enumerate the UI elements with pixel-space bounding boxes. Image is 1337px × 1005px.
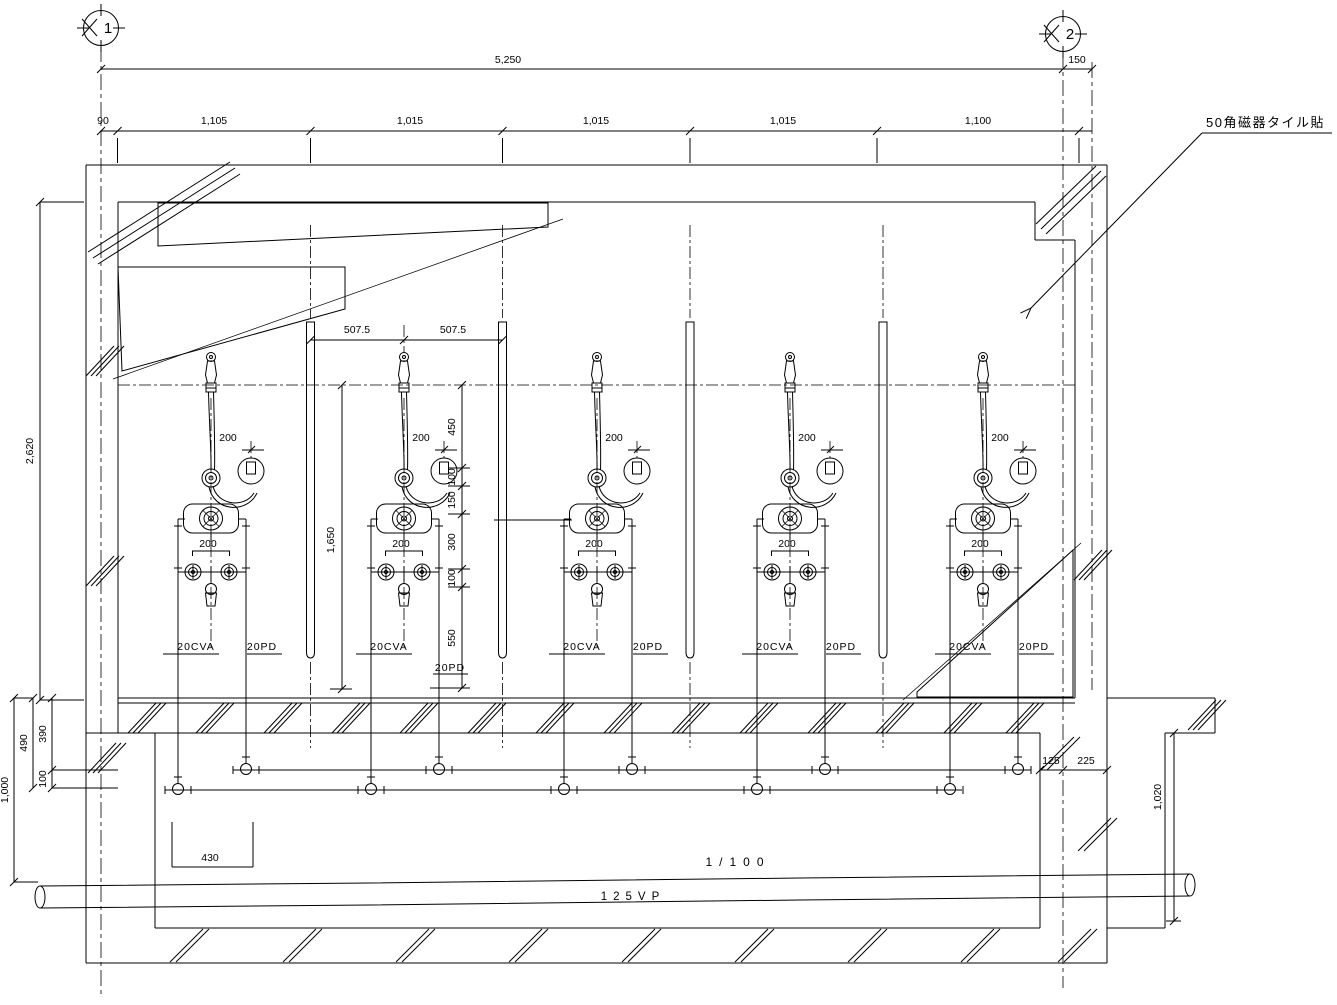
dimension-stack: 450 100 150 300 100 550 [430,381,470,692]
grid-bubble-2-label: 2 [1066,26,1074,43]
dim-seg-1015a: 1,015 [397,115,423,127]
grid-bubble-1-label: 1 [104,20,112,37]
tile-break-line-upper [113,219,563,379]
dim-pit-225: 225 [1077,755,1095,767]
tile-break-line-lower [903,543,1081,700]
f5-drain-label: 20PD [1019,641,1049,653]
dim-pit-125: 125 [1042,755,1060,767]
dim-left-lower: 100 [37,770,49,788]
f3-valve-spacing: 200 [585,538,603,550]
dim-seg-90: 90 [97,115,109,127]
dim-stack-550: 550 [446,629,458,647]
dimension-riser: 1,650 [325,381,352,693]
dimension-bay: 507.5 507.5 [307,324,507,344]
wall-outline [86,165,1215,963]
dim-stack-450: 450 [446,418,458,436]
dim-stack-100a: 100 [446,468,458,486]
dim-stack-300: 300 [446,533,458,551]
elevation-drawing: 1 2 5,250 150 90 1,105 1,015 1,015 1,015… [0,0,1337,1005]
dim-wall-height: 2,620 [24,438,36,464]
dim-seg-1105: 1,105 [201,115,227,127]
f5-supply-label: 20CVA [949,641,987,653]
f4-supply-label: 20CVA [756,641,794,653]
dim-bay-right: 507.5 [440,324,466,336]
tile-note: 50角磁器タイル貼 [1031,115,1332,308]
dim-seg-1015c: 1,015 [770,115,796,127]
partition-3 [686,225,694,748]
f1-hook-offset: 200 [219,432,237,444]
dim-stack-100b: 100 [446,569,458,587]
shower-fixture-4 [742,353,843,795]
f2-valve-spacing: 200 [392,538,410,550]
shower-fixture-1 [163,353,264,795]
grid-bubble-1: 1 [77,4,125,52]
f5-valve-spacing: 200 [971,538,989,550]
f1-supply-label: 20CVA [177,641,215,653]
dim-seg-1100: 1,100 [965,115,991,127]
pipe-slope-label: 1/100 [705,855,770,869]
dim-stack-150: 150 [446,491,458,509]
section-hatching [86,162,1226,962]
pit-piping [165,770,1031,790]
dim-bay-left: 507.5 [344,324,370,336]
dimension-pit-width: 430 [172,822,253,867]
dim-pit-depth: 1,020 [1152,784,1164,810]
f5-hook-offset: 200 [991,432,1009,444]
f2-drain-label: 20PD [435,662,465,674]
dim-right-offset: 150 [1068,54,1086,66]
dim-left-upper: 390 [37,725,49,743]
dim-seg-1015b: 1,015 [583,115,609,127]
pipe-size-label: 125VP [601,891,666,903]
partition-4 [879,225,887,748]
f3-drain-label: 20PD [633,641,663,653]
f4-drain-label: 20PD [826,641,856,653]
f2-hook-offset: 200 [412,432,430,444]
dim-pit-width: 430 [201,852,219,864]
f1-drain-label: 20PD [247,641,277,653]
shower-fixture-2 [356,353,457,795]
tile-note-text: 50角磁器タイル貼 [1206,115,1325,130]
f2-supply-label: 20CVA [370,641,408,653]
dimension-left: 2,620 490 390 100 1,000 [0,198,118,886]
f3-hook-offset: 200 [605,432,623,444]
tile-note-leader [1031,133,1202,308]
partition-1 [307,225,315,748]
fixture-labels: 200 200 200 200 200 200 200 200 200 200 … [177,432,1049,674]
dim-left-total: 490 [18,734,30,752]
shower-fixture-3 [549,353,650,795]
dim-riser: 1,650 [325,527,337,553]
cad-drawing-canvas: 1 2 5,250 150 90 1,105 1,015 1,015 1,015… [0,0,1337,1005]
grid-bubble-2: 2 [1039,10,1087,58]
dim-overall-width: 5,250 [495,54,521,66]
f4-hook-offset: 200 [798,432,816,444]
partition-2 [499,225,507,748]
f1-valve-spacing: 200 [199,538,217,550]
f4-valve-spacing: 200 [778,538,796,550]
f3-supply-label: 20CVA [563,641,601,653]
dim-left-pit: 1,000 [0,777,11,803]
dimension-top: 5,250 150 90 1,105 1,015 1,015 1,015 1,1… [97,54,1096,163]
